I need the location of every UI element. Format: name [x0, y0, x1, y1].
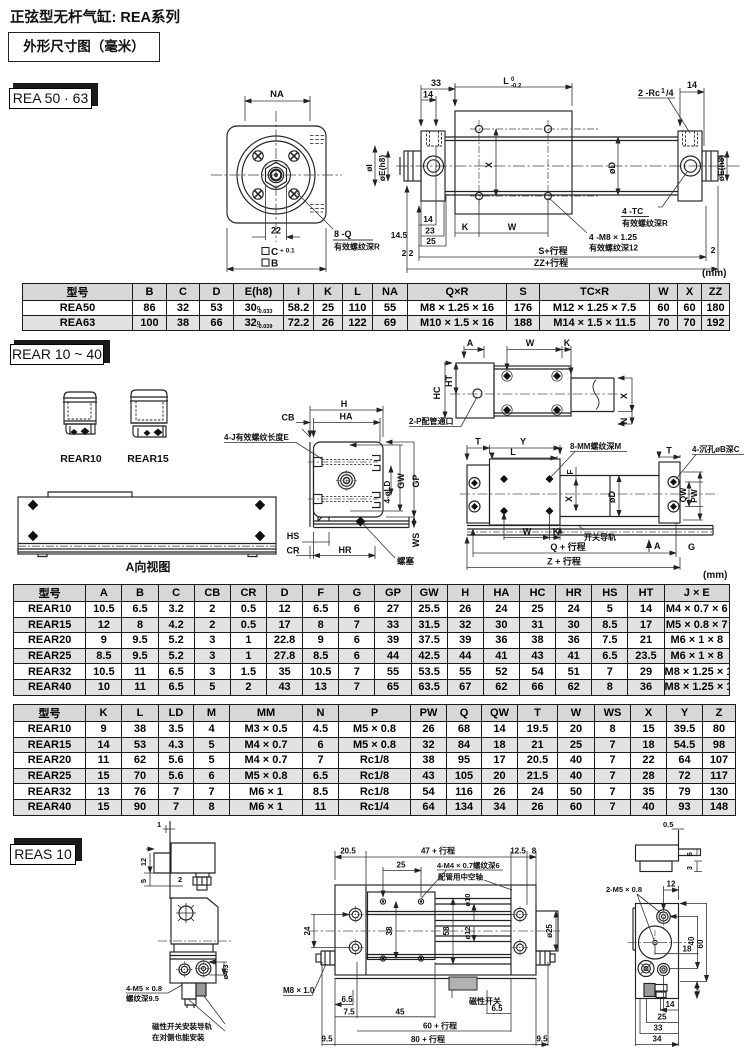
- svg-text:HA: HA: [340, 412, 353, 422]
- svg-text:25: 25: [397, 861, 406, 870]
- svg-text:4-J有效螺纹长度E: 4-J有效螺纹长度E: [224, 432, 290, 442]
- svg-text:14: 14: [687, 80, 697, 90]
- svg-text:/4: /4: [666, 88, 674, 98]
- svg-text:47 + 行程: 47 + 行程: [421, 846, 455, 856]
- svg-text:8: 8: [532, 847, 537, 856]
- svg-text:HT: HT: [444, 375, 454, 387]
- svg-text:25: 25: [426, 236, 436, 246]
- svg-text:22: 22: [271, 226, 281, 236]
- svg-text:ø25: ø25: [545, 924, 554, 938]
- svg-text:K: K: [553, 527, 560, 537]
- svg-text:Z + 行程: Z + 行程: [547, 556, 581, 567]
- svg-text:T: T: [666, 446, 672, 456]
- svg-text:磁性开关安装导轨: 磁性开关安装导轨: [152, 1021, 212, 1031]
- svg-text:ø10: ø10: [463, 894, 472, 907]
- svg-text:H: H: [341, 399, 348, 409]
- svg-text:F: F: [566, 469, 575, 474]
- svg-text:有效螺纹深12: 有效螺纹深12: [589, 243, 638, 253]
- svg-text:C: C: [271, 247, 278, 258]
- svg-text:A向视图: A向视图: [126, 559, 171, 574]
- svg-text:9.5: 9.5: [536, 1035, 548, 1044]
- svg-text:Q + 行程: Q + 行程: [550, 541, 585, 552]
- svg-text:14: 14: [666, 1000, 675, 1009]
- svg-text:W: W: [523, 527, 532, 537]
- svg-text:在对侧也能安装: 在对侧也能安装: [152, 1032, 205, 1042]
- svg-text:0.5: 0.5: [663, 820, 673, 829]
- svg-text:6: 6: [687, 852, 694, 856]
- svg-text:+ 0.1: + 0.1: [280, 248, 295, 255]
- svg-text:20.5: 20.5: [340, 847, 356, 856]
- svg-text:45: 45: [396, 1007, 405, 1016]
- svg-text:ZZ+行程: ZZ+行程: [534, 257, 568, 268]
- svg-text:HC: HC: [432, 386, 442, 399]
- svg-text:7.5: 7.5: [343, 1007, 355, 1016]
- svg-text:配管用中空轴: 配管用中空轴: [438, 872, 483, 882]
- svg-text:14: 14: [423, 90, 433, 100]
- svg-text:HS: HS: [287, 531, 300, 541]
- svg-text:2: 2: [409, 248, 414, 258]
- svg-text:N: N: [619, 418, 629, 425]
- svg-text:0: 0: [511, 77, 515, 83]
- svg-text:60 + 行程: 60 + 行程: [423, 1021, 457, 1031]
- svg-text:12: 12: [139, 858, 148, 866]
- svg-text:9.5: 9.5: [321, 1035, 333, 1044]
- svg-text:PW: PW: [689, 488, 699, 503]
- svg-text:5: 5: [139, 879, 148, 883]
- svg-text:WS: WS: [411, 533, 421, 548]
- svg-text:4 -TC: 4 -TC: [622, 206, 643, 216]
- svg-text:12: 12: [667, 880, 676, 889]
- svg-text:58: 58: [442, 926, 451, 935]
- svg-text:øD: øD: [607, 162, 617, 174]
- svg-text:GP: GP: [411, 474, 421, 487]
- svg-text:QW: QW: [678, 487, 688, 503]
- svg-text:øE(h8): øE(h8): [377, 155, 387, 182]
- svg-text:螺纹深9.5: 螺纹深9.5: [126, 993, 159, 1003]
- svg-text:B: B: [271, 259, 278, 270]
- svg-text:ø4.3: ø4.3: [221, 964, 230, 979]
- svg-text:33: 33: [431, 78, 441, 88]
- svg-text:GW: GW: [396, 473, 406, 489]
- svg-text:ø12: ø12: [463, 927, 472, 940]
- svg-text:14: 14: [693, 985, 702, 994]
- svg-text:2: 2: [711, 245, 716, 255]
- svg-text:øI: øI: [364, 164, 374, 172]
- svg-text:REAR15: REAR15: [127, 453, 169, 465]
- svg-text:33: 33: [654, 1024, 663, 1033]
- svg-text:有效螺纹深R: 有效螺纹深R: [622, 218, 668, 228]
- svg-text:A: A: [467, 338, 474, 348]
- svg-text:NA: NA: [270, 89, 284, 100]
- svg-text:4 -M8 × 1.25: 4 -M8 × 1.25: [589, 232, 637, 242]
- svg-text:4-沉孔øB深C: 4-沉孔øB深C: [692, 444, 740, 454]
- svg-text:2-P配管通口: 2-P配管通口: [409, 416, 453, 426]
- svg-text:4-M5 × 0.8: 4-M5 × 0.8: [126, 984, 162, 993]
- svg-text:K: K: [462, 222, 469, 232]
- svg-text:40: 40: [687, 936, 696, 945]
- svg-text:REAR10: REAR10: [60, 453, 102, 465]
- svg-text:CR: CR: [287, 546, 300, 556]
- svg-text:L: L: [510, 447, 516, 457]
- svg-text:1: 1: [157, 820, 161, 829]
- svg-text:X: X: [484, 162, 494, 168]
- svg-text:14.5: 14.5: [391, 230, 408, 240]
- svg-text:12.5: 12.5: [510, 847, 526, 856]
- svg-text:38: 38: [385, 926, 394, 935]
- svg-text:S+行程: S+行程: [538, 245, 567, 256]
- svg-text:-0.2: -0.2: [511, 84, 522, 90]
- svg-text:X: X: [564, 496, 574, 502]
- svg-text:G: G: [688, 542, 695, 552]
- svg-text:A: A: [654, 541, 661, 551]
- svg-text:4-øLD: 4-øLD: [383, 480, 392, 503]
- svg-text:1: 1: [661, 88, 665, 95]
- svg-text:X: X: [619, 393, 629, 399]
- svg-text:60: 60: [696, 939, 705, 948]
- svg-text:6.5: 6.5: [491, 1004, 503, 1013]
- svg-text:14: 14: [423, 214, 433, 224]
- svg-text:6.5: 6.5: [341, 995, 353, 1004]
- svg-text:K: K: [564, 338, 571, 348]
- svg-text:25: 25: [658, 1013, 667, 1022]
- svg-text:8-MM螺纹深M: 8-MM螺纹深M: [570, 441, 621, 451]
- svg-text:螺塞: 螺塞: [397, 556, 415, 566]
- svg-text:2: 2: [402, 248, 407, 258]
- svg-text:øE(h8): øE(h8): [716, 155, 726, 182]
- svg-text:Y: Y: [520, 437, 526, 447]
- svg-text:CB: CB: [282, 413, 295, 423]
- svg-text:W: W: [508, 222, 517, 232]
- svg-text:2: 2: [178, 875, 182, 884]
- svg-text:34: 34: [653, 1035, 662, 1044]
- svg-text:有效螺纹深R: 有效螺纹深R: [334, 242, 380, 252]
- svg-text:(mm): (mm): [703, 570, 727, 580]
- svg-text:2 -Rc: 2 -Rc: [638, 88, 660, 98]
- svg-text:4-M4 × 0.7螺纹深6: 4-M4 × 0.7螺纹深6: [437, 860, 500, 870]
- svg-text:HR: HR: [339, 545, 352, 555]
- svg-text:T: T: [475, 437, 481, 447]
- svg-text:24: 24: [303, 926, 312, 935]
- svg-text:W: W: [526, 338, 535, 348]
- svg-text:80 + 行程: 80 + 行程: [411, 1034, 445, 1044]
- svg-text:øD: øD: [607, 491, 617, 503]
- svg-text:M8 × 1.0: M8 × 1.0: [283, 986, 315, 995]
- svg-text:3: 3: [687, 866, 694, 870]
- svg-text:L: L: [503, 76, 509, 86]
- svg-text:开关导轨: 开关导轨: [584, 532, 616, 542]
- svg-text:23: 23: [425, 226, 435, 236]
- svg-text:2-M5 × 0.8: 2-M5 × 0.8: [606, 885, 642, 894]
- svg-text:8 -Q: 8 -Q: [334, 229, 352, 239]
